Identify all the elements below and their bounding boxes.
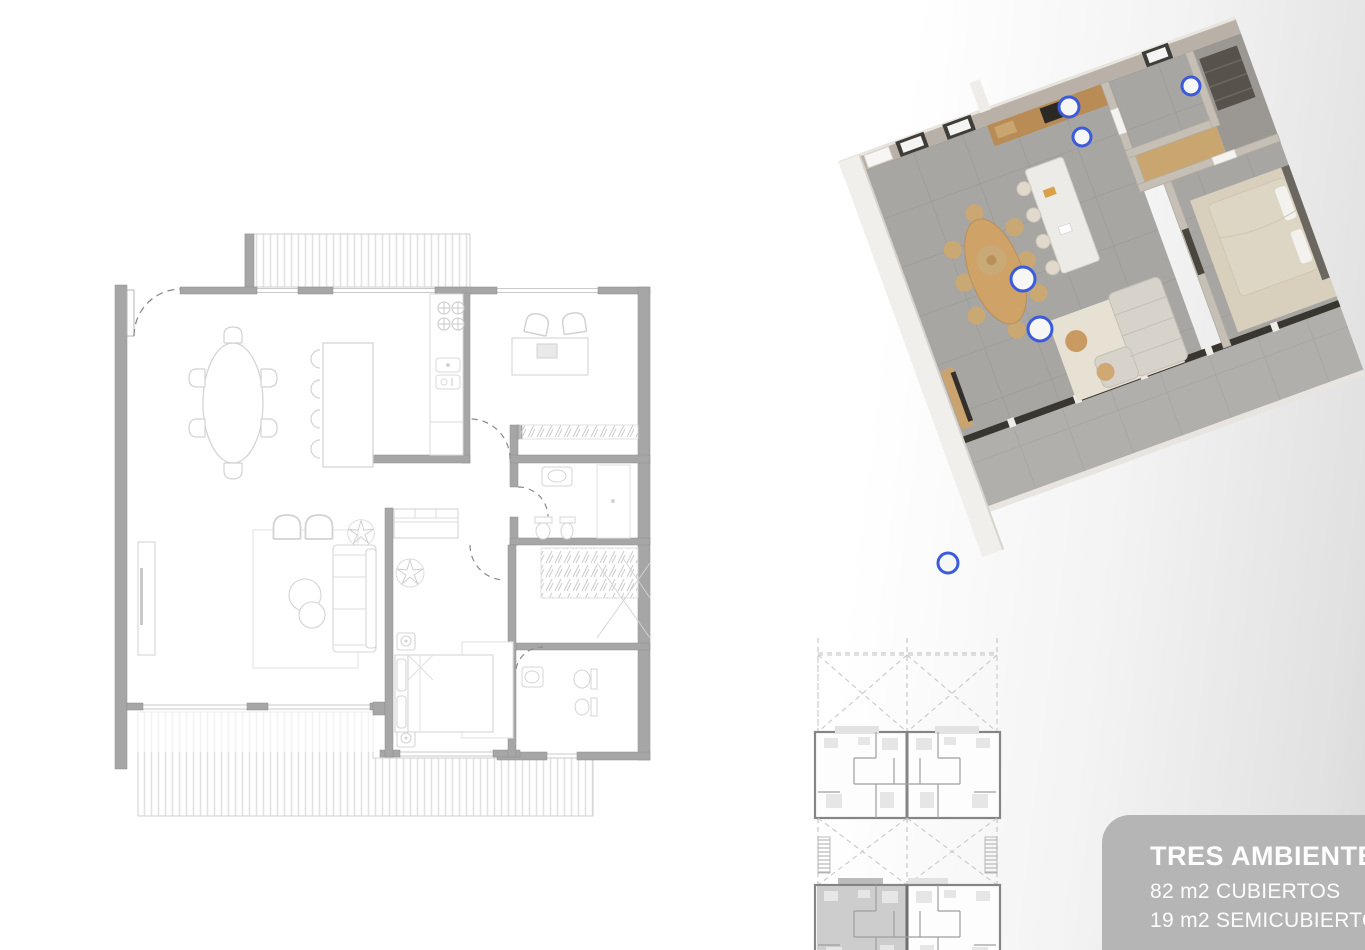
floorplan-2d [113,228,663,820]
tv [140,568,143,625]
closet-top [520,425,638,439]
coffee-table [299,602,325,628]
ceiling-light-icon [1073,128,1091,146]
page: TRES AMBIENTES 82 m2 CUBIERTOS 19 m2 SEM… [0,0,1365,950]
chimney [970,79,991,113]
covered-area: 82 m2 CUBIERTOS [1150,880,1365,904]
kitchen-counter [430,294,464,455]
wardrobe [394,509,458,538]
semicovered-area: 19 m2 SEMICUBIERTOS [1150,909,1365,933]
top-deck [245,234,470,287]
ceiling-light-icon [1059,97,1079,117]
bed [395,655,493,732]
ceiling-light-icon [1182,77,1200,95]
info-card: TRES AMBIENTES 82 m2 CUBIERTOS 19 m2 SEM… [1102,815,1365,950]
building-block-1 [815,726,1000,818]
stairs [818,837,830,873]
laptop [537,344,557,358]
render-3d-isometric [795,10,1365,635]
nightstand [397,633,415,650]
bidet [575,698,597,716]
site-keyplan [805,638,1005,950]
unit-type-title: TRES AMBIENTES [1150,841,1365,872]
stairs [985,837,997,873]
ceiling-light-icon [938,553,958,573]
ceiling-light-icon [1028,317,1052,341]
building-block-2 [815,878,1000,950]
ceiling-light-icon [1011,267,1035,291]
sofa [333,545,376,652]
toilet [574,669,597,689]
